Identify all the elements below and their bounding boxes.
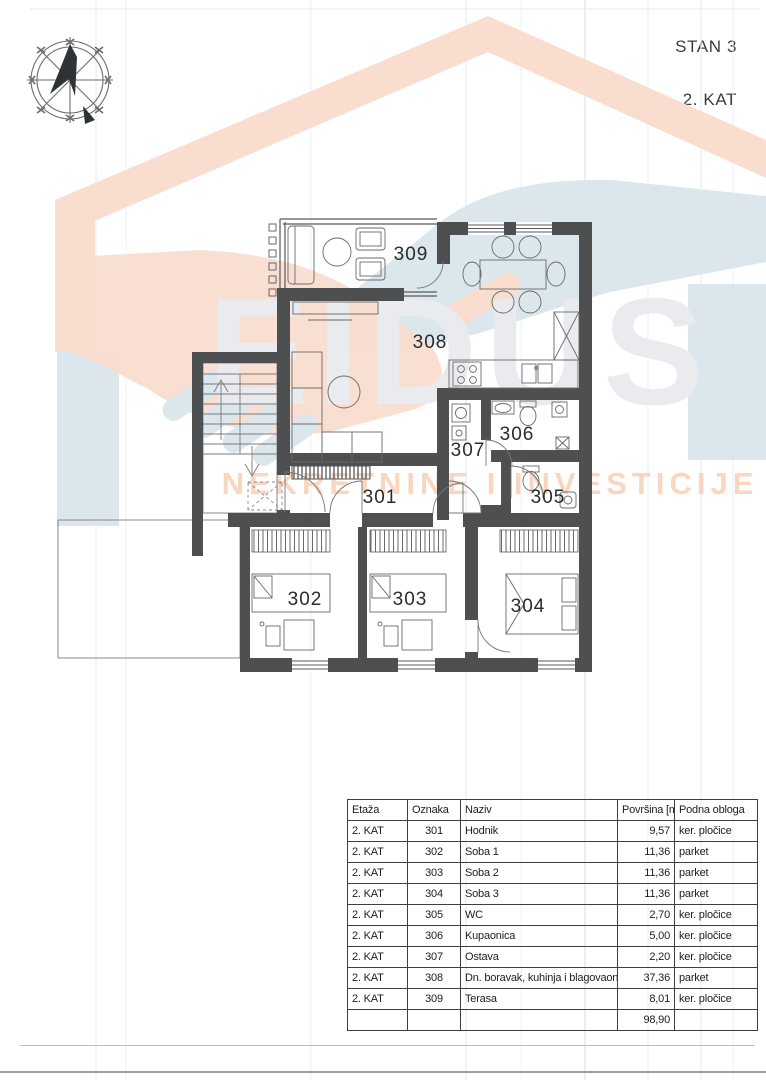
col-header-oznaka: Oznaka bbox=[408, 800, 461, 821]
radiator bbox=[292, 466, 370, 479]
table-row: 2. KAT302 Soba 111,36 parket bbox=[348, 842, 758, 863]
table-row: 2. KAT307 Ostava2,20 ker. pločice bbox=[348, 947, 758, 968]
table-row: 2. KAT305 WC2,70 ker. pločice bbox=[348, 905, 758, 926]
col-header-povrsina: Površina [m²] bbox=[618, 800, 675, 821]
room-label-306: 306 bbox=[500, 424, 535, 445]
room-label-307: 307 bbox=[451, 440, 486, 461]
col-header-etaza: Etaža bbox=[348, 800, 408, 821]
footer-line-2 bbox=[0, 1071, 766, 1073]
room-label-305: 305 bbox=[531, 487, 566, 508]
col-header-obloga: Podna obloga bbox=[675, 800, 758, 821]
table-row: 2. KAT306 Kupaonica5,00 ker. pločice bbox=[348, 926, 758, 947]
table-total-row: 98,90 bbox=[348, 1010, 758, 1031]
room-label-302: 302 bbox=[288, 589, 323, 610]
table-row: 2. KAT309 Terasa8,01 ker. pločice bbox=[348, 989, 758, 1010]
table-header-row: Etaža Oznaka Naziv Površina [m²] Podna o… bbox=[348, 800, 758, 821]
table-row: 2. KAT301 Hodnik9,57 ker. pločice bbox=[348, 821, 758, 842]
room-label-309: 309 bbox=[394, 244, 429, 265]
room-label-303: 303 bbox=[393, 589, 428, 610]
floor-plan-sheet: STAN 3 2. KAT bbox=[0, 0, 766, 1080]
table-row: 2. KAT308 Dn. boravak, kuhinja i blagova… bbox=[348, 968, 758, 989]
total-area: 98,90 bbox=[618, 1010, 675, 1031]
col-header-naziv: Naziv bbox=[461, 800, 618, 821]
room-label-301: 301 bbox=[363, 487, 398, 508]
table-row: 2. KAT304 Soba 311,36 parket bbox=[348, 884, 758, 905]
area-table: Etaža Oznaka Naziv Površina [m²] Podna o… bbox=[347, 799, 758, 1031]
footer-line-1 bbox=[20, 1045, 755, 1046]
room-label-308: 308 bbox=[413, 332, 448, 353]
bedroom3-furniture bbox=[500, 530, 578, 634]
room-label-304: 304 bbox=[511, 596, 546, 617]
table-row: 2. KAT303 Soba 211,36 parket bbox=[348, 863, 758, 884]
compass-icon bbox=[27, 37, 113, 124]
